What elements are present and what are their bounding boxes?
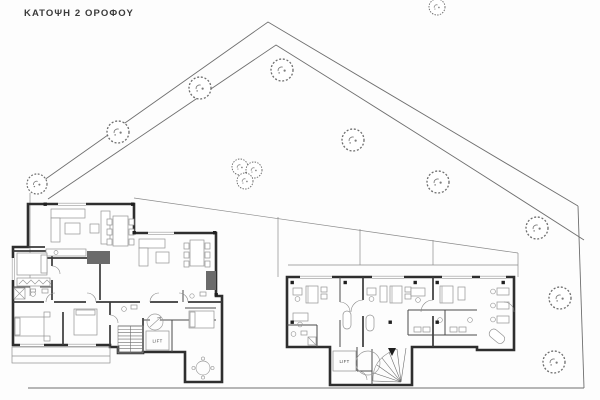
- left-living-room-furniture: [46, 209, 134, 264]
- left-building: LIFT: [11, 202, 222, 382]
- right-unit1-furniture: [291, 286, 351, 345]
- left-living-room2-furniture: [139, 239, 216, 290]
- right-unit2-furniture: [366, 286, 442, 332]
- right-lift-label: LIFT: [339, 359, 349, 364]
- tree-icon: [237, 173, 253, 189]
- tree-icon: [232, 159, 248, 175]
- left-lift: LIFT: [146, 331, 169, 350]
- tree-icon: [549, 287, 571, 309]
- right-lift: LIFT: [333, 351, 356, 371]
- left-staircase: [118, 326, 143, 353]
- left-balcony: [12, 347, 110, 363]
- tree-icon: [27, 174, 47, 194]
- left-lift-label: LIFT: [152, 339, 162, 344]
- tree-icon: [189, 77, 211, 99]
- tree-icon: [342, 129, 364, 151]
- right-building: LIFT: [287, 275, 514, 385]
- right-winder-stair: [356, 348, 406, 382]
- floor-plan-page: ΚΑΤΟΨΗ 2 ΟΡΟΦΟΥ: [0, 0, 600, 400]
- right-unit3-furniture: [411, 286, 509, 345]
- tree-icon: [271, 59, 293, 81]
- tree-icon: [107, 121, 129, 143]
- left-void-circle: [147, 314, 163, 330]
- left-door-arcs: [46, 266, 188, 323]
- tree-icon: [526, 217, 548, 239]
- floor-plan-drawing: ΚΑΤΟΨΗ 2 ΟΡΟΦΟΥ: [0, 0, 600, 400]
- tree-icon: [429, 0, 445, 15]
- tree-icon: [427, 171, 449, 193]
- tree-icon: [543, 351, 565, 373]
- page-title: ΚΑΤΟΨΗ 2 ΟΡΟΦΟΥ: [24, 8, 134, 19]
